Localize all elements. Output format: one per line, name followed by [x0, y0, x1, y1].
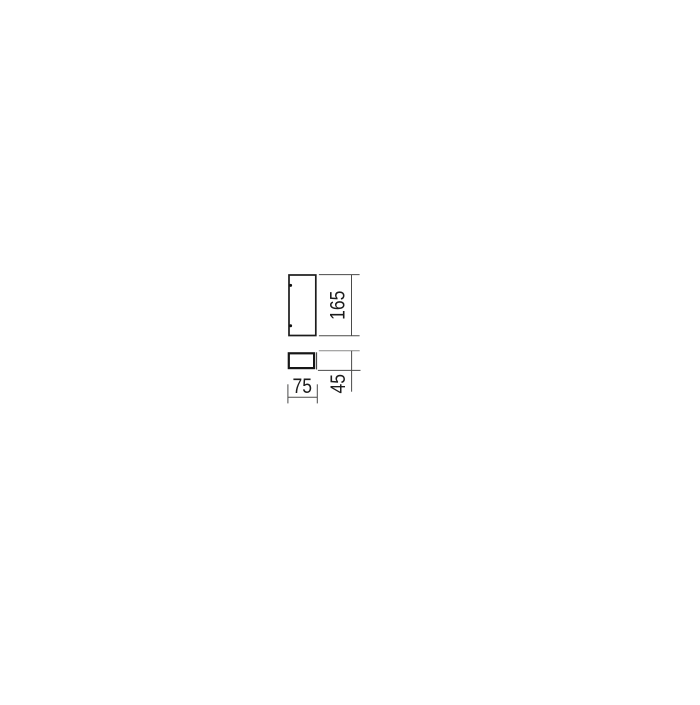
svg-text:45: 45 [326, 374, 350, 394]
svg-text:165: 165 [326, 291, 350, 320]
svg-text:75: 75 [293, 374, 313, 398]
